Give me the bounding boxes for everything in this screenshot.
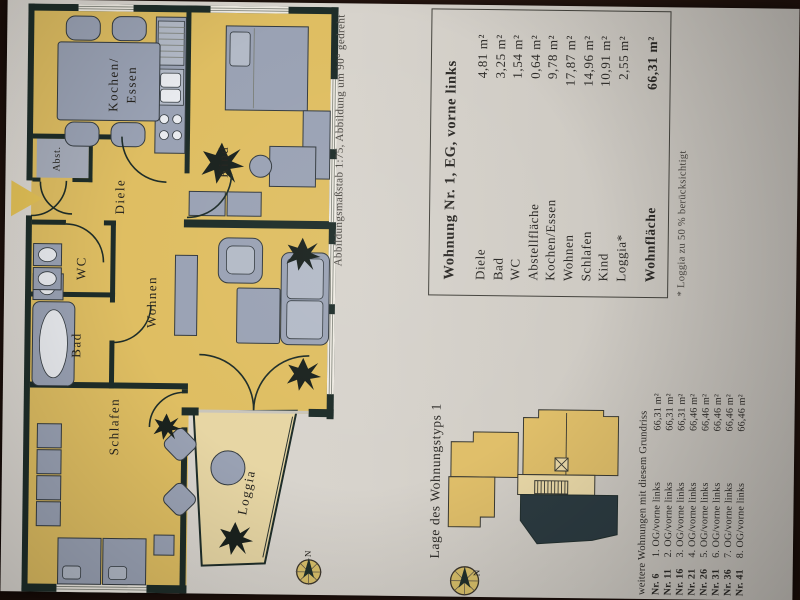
table-footnote: * Loggia zu 50 % berücksichtigt bbox=[676, 150, 689, 296]
table-row: Schlafen14,96 m² bbox=[577, 35, 598, 281]
unit-number: Nr. 36 bbox=[722, 558, 734, 596]
unit-floor: 8. OG/vorne links bbox=[735, 450, 748, 558]
nightstand bbox=[154, 535, 174, 555]
row-value: 14,96 m² bbox=[579, 35, 597, 87]
table-total-row: Wohnfläche66,31 m² bbox=[643, 36, 662, 282]
total-label: Wohnfläche bbox=[643, 207, 660, 282]
unit-area: 66,31 m² bbox=[652, 393, 665, 449]
unit-area: 66,46 m² bbox=[712, 394, 725, 450]
desk-chair bbox=[249, 155, 271, 177]
site-compass-icon: N bbox=[450, 567, 481, 595]
unit-number: Nr. 26 bbox=[698, 558, 710, 596]
unit-number: Nr. 31 bbox=[710, 558, 722, 596]
room-label-abst: Abst. bbox=[52, 146, 63, 172]
row-value: 17,87 m² bbox=[562, 35, 580, 87]
list-title: weitere Wohnungen mit diesem Grundriss bbox=[636, 393, 649, 595]
row-value: 2,55 m² bbox=[614, 36, 632, 80]
room-label-kochen-line2: Essen bbox=[123, 66, 138, 104]
row-label: Schlafen bbox=[577, 231, 595, 281]
table-row: Loggia*2,55 m² bbox=[612, 36, 633, 282]
north-compass-icon: N bbox=[296, 550, 322, 585]
row-label: Wohnen bbox=[559, 234, 577, 281]
loggia-table bbox=[211, 451, 245, 485]
unit-number: Nr. 11 bbox=[662, 557, 674, 595]
coffee-table bbox=[236, 288, 280, 344]
row-label: WC bbox=[506, 258, 524, 280]
unit-area: 66,46 m² bbox=[724, 394, 737, 450]
room-label-wc: WC bbox=[73, 256, 88, 280]
room-label-kind: Kind bbox=[215, 146, 230, 178]
document-page: Kochen/ Essen Kind Diele Abst. WC Bad Wo… bbox=[0, 0, 799, 600]
kitchen-furniture bbox=[57, 16, 187, 154]
row-value: 3,25 m² bbox=[491, 34, 509, 78]
unit-area: 66,31 m² bbox=[664, 393, 677, 449]
floor-plan-area: Kochen/ Essen Kind Diele Abst. WC Bad Wo… bbox=[4, 3, 343, 597]
row-label: Abstellfläche bbox=[524, 203, 543, 280]
room-label-bad: Bad bbox=[68, 332, 83, 358]
table-title: Wohnung Nr. 1, EG, vorne links bbox=[441, 34, 461, 280]
area-table: Wohnung Nr. 1, EG, vorne links Diele4,81… bbox=[428, 8, 671, 298]
site-compass-n-label: N bbox=[472, 569, 482, 576]
row-label: Kochen/Essen bbox=[542, 199, 561, 281]
unit-area: 66,31 m² bbox=[676, 393, 689, 449]
unit-number: Nr. 21 bbox=[686, 558, 698, 596]
site-plan-figure: N bbox=[441, 387, 624, 600]
row-label: Kind bbox=[594, 253, 612, 282]
floor-plan-figure: Kochen/ Essen Kind Diele Abst. WC Bad Wo… bbox=[4, 3, 343, 597]
row-value: 0,64 m² bbox=[526, 35, 544, 79]
highlighted-unit bbox=[520, 494, 618, 544]
row-value: 9,78 m² bbox=[544, 35, 562, 79]
unit-number: Nr. 41 bbox=[734, 558, 746, 596]
unit-number: Nr. 6 bbox=[650, 557, 662, 595]
row-label: Loggia* bbox=[612, 234, 630, 282]
room-label-schlafen: Schlafen bbox=[106, 398, 122, 456]
row-value: 1,54 m² bbox=[509, 34, 527, 78]
unit-area: 66,46 m² bbox=[736, 394, 749, 450]
site-plan-area: N bbox=[441, 389, 624, 599]
other-units-list: weitere Wohnungen mit diesem Grundriss N… bbox=[636, 393, 748, 596]
room-label-kochen-line1: Kochen/ bbox=[105, 57, 121, 112]
unit-number: Nr. 16 bbox=[674, 557, 686, 595]
list-item: Nr. 418. OG/vorne links66,46 m² bbox=[734, 394, 748, 596]
unit-area: 66,46 m² bbox=[700, 394, 713, 450]
total-value: 66,31 m² bbox=[645, 36, 662, 90]
room-label-diele: Diele bbox=[112, 179, 127, 215]
unit-area: 66,46 m² bbox=[688, 394, 701, 450]
room-label-wohnen: Wohnen bbox=[144, 276, 160, 328]
row-label: Bad bbox=[489, 257, 507, 280]
desk bbox=[269, 146, 315, 187]
compass-n-label: N bbox=[303, 550, 313, 557]
photo-background: Kochen/ Essen Kind Diele Abst. WC Bad Wo… bbox=[0, 0, 800, 600]
row-value: 10,91 m² bbox=[597, 35, 615, 87]
row-value: 4,81 m² bbox=[474, 34, 492, 78]
row-label: Diele bbox=[471, 249, 489, 280]
